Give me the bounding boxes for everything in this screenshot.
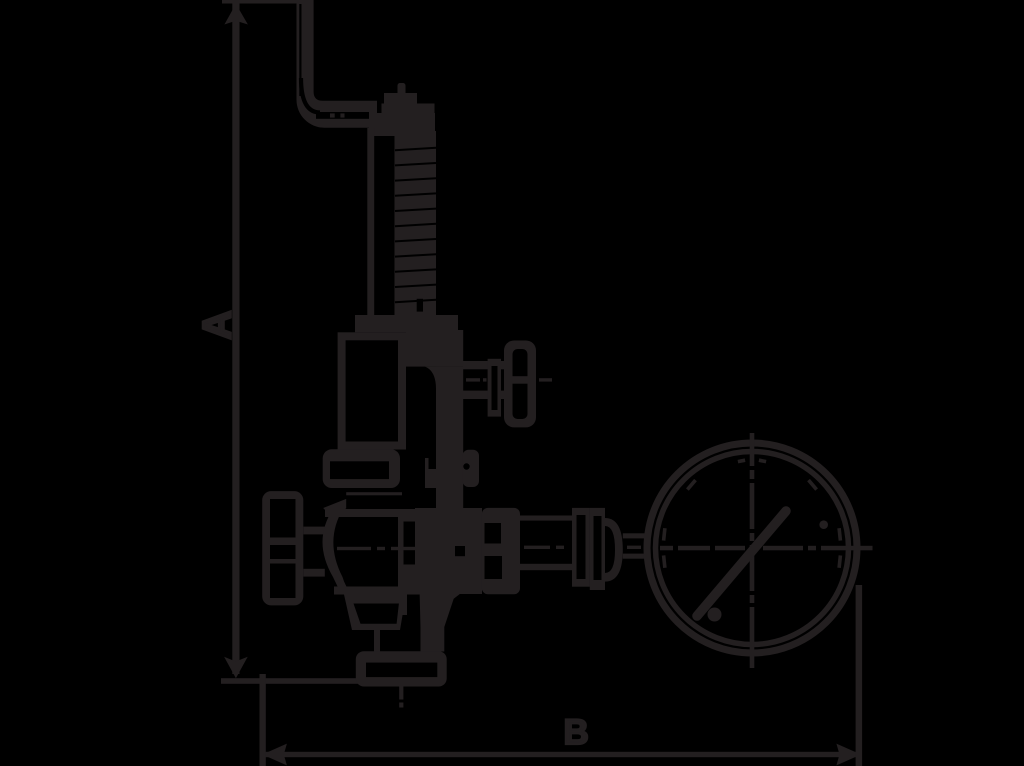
svg-text:A: A	[196, 311, 240, 340]
svg-text:B: B	[564, 713, 589, 752]
